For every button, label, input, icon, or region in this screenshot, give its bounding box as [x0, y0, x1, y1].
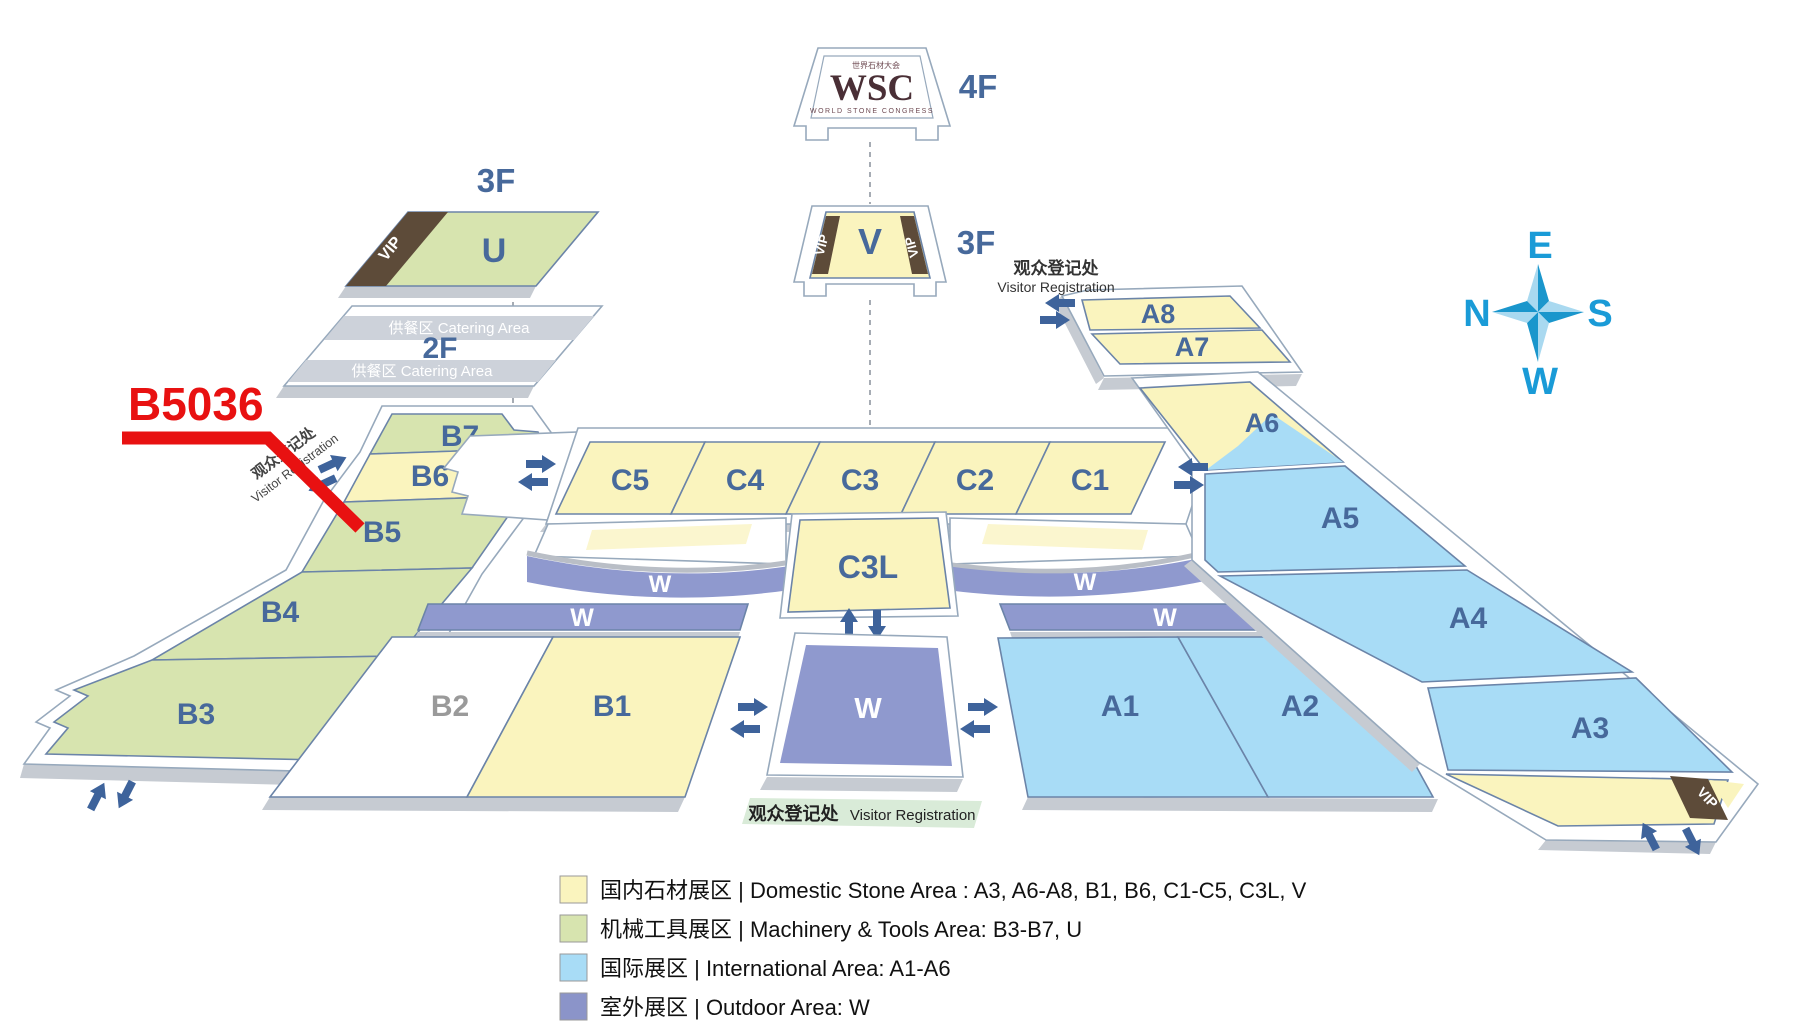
hall-c5-label: C5 [611, 464, 649, 497]
hall-b4-label: B4 [261, 596, 300, 629]
building-u: VIP U 3F [338, 162, 598, 298]
legend-label-international: 国际展区 | International Area: A1-A6 [600, 956, 951, 981]
compass-w: W [1522, 361, 1558, 403]
hall-u-label: U [482, 232, 507, 270]
venue-map: 世界石材大会 WSC WORLD STONE CONGRESS 4F VIP V… [0, 0, 1800, 1032]
floor-label-2f: 2F [422, 332, 457, 365]
hall-c2-label: C2 [956, 464, 994, 497]
hall-c1-label: C1 [1071, 464, 1109, 497]
b1-b2-base [262, 797, 685, 812]
top-visitor-registration-en: Visitor Registration [997, 279, 1114, 295]
entrance-arrow [730, 720, 760, 738]
hall-b3-label: B3 [177, 698, 215, 731]
legend: 国内石材展区 | Domestic Stone Area : A3, A6-A8… [560, 876, 1307, 1020]
hall-a7-label: A7 [1175, 332, 1210, 362]
registration-banner-cn: 观众登记处 [748, 803, 839, 824]
corridor-w-right-label: W [1074, 569, 1097, 596]
hall-a5-label: A5 [1321, 502, 1359, 535]
a8-a7-slab: A8 A7 观众登记处 Visitor Registration [997, 258, 1302, 390]
2f-base [276, 386, 534, 398]
floor-label-3f-v: 3F [957, 224, 996, 261]
a1-a2-base [1022, 797, 1438, 812]
wsc-logo-subtitle: WORLD STONE CONGRESS [810, 108, 934, 115]
legend-swatch-outdoor [560, 993, 587, 1020]
legend-label-outdoor: 室外展区 | Outdoor Area: W [600, 995, 870, 1020]
w-block-base [760, 777, 963, 792]
legend-label-domestic: 国内石材展区 | Domestic Stone Area : A3, A6-A8… [600, 878, 1307, 903]
entrance-arrow [968, 698, 998, 716]
hall-a3-label: A3 [1571, 712, 1609, 745]
catering-label-bottom: 供餐区 Catering Area [352, 363, 494, 380]
catering-label-top: 供餐区 Catering Area [389, 320, 531, 337]
legend-swatch-machinery [560, 915, 587, 942]
hall-w-label: W [854, 693, 882, 725]
building-4f-wsc: 世界石材大会 WSC WORLD STONE CONGRESS 4F [794, 48, 997, 140]
hall-c4-label: C4 [726, 464, 765, 497]
u-base [338, 286, 536, 298]
entrance-arrow [738, 698, 768, 716]
hall-v-label: V [858, 221, 882, 262]
top-visitor-registration: 观众登记处 Visitor Registration [997, 258, 1114, 295]
hall-c3-label: C3 [841, 464, 879, 497]
hall-a4-label: A4 [1449, 602, 1488, 635]
wsc-logo: WSC [830, 68, 914, 109]
legend-label-machinery: 机械工具展区 | Machinery & Tools Area: B3-B7, … [600, 917, 1082, 942]
w-bar-left-label: W [570, 604, 594, 632]
registration-banner-text: 观众登记处 Visitor Registration [748, 803, 975, 824]
hall-a8-label: A8 [1141, 299, 1176, 329]
entrance-arrow [83, 779, 113, 814]
hall-a2-label: A2 [1281, 690, 1319, 723]
compass-n: N [1463, 293, 1490, 335]
c3l: C3L [780, 512, 958, 640]
building-v: VIP VIP V 3F [794, 206, 995, 296]
hall-a6-label: A6 [1245, 408, 1280, 438]
corridor-w-left-label: W [649, 571, 672, 598]
registration-banner: 观众登记处 Visitor Registration [742, 798, 982, 828]
hall-b1-label: B1 [593, 690, 631, 723]
top-visitor-registration-cn: 观众登记处 [1013, 258, 1100, 278]
legend-swatch-domestic [560, 876, 587, 903]
hall-c3l-label: C3L [838, 549, 898, 585]
platform-2f: 供餐区 Catering Area 供餐区 Catering Area 2F [276, 306, 602, 398]
compass-s: S [1587, 293, 1612, 335]
hall-a1-label: A1 [1101, 690, 1139, 723]
legend-swatch-international [560, 954, 587, 981]
floor-label-3f-u: 3F [477, 162, 516, 199]
entrance-arrow [111, 777, 141, 812]
hall-b6-label: B6 [411, 460, 449, 493]
compass-e: E [1527, 225, 1552, 267]
w-outdoor-block: W [760, 633, 998, 792]
booth-number: B5036 [128, 378, 264, 430]
w-bar-right-label: W [1153, 604, 1177, 632]
floor-label-4f: 4F [959, 68, 998, 105]
hall-b2-label: B2 [431, 690, 469, 723]
registration-banner-en: Visitor Registration [850, 807, 976, 824]
floorplan-page: 世界石材大会 WSC WORLD STONE CONGRESS 4F VIP V… [0, 0, 1800, 1032]
compass: E N S W [1463, 225, 1612, 403]
entrance-arrow [960, 720, 990, 738]
hall-b5-label: B5 [363, 516, 401, 549]
